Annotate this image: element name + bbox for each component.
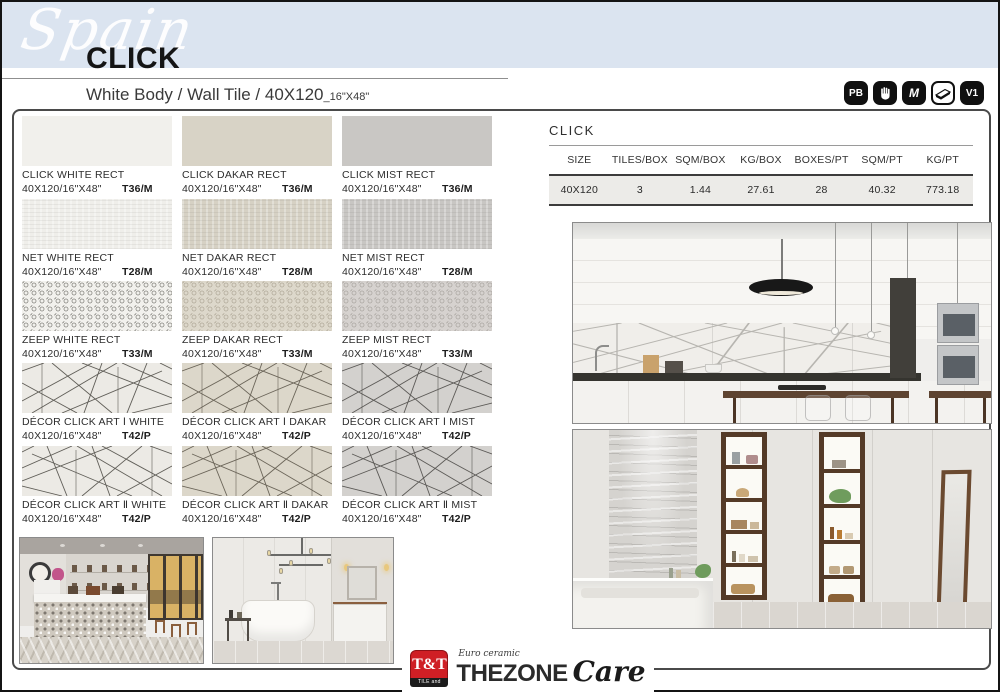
tile-swatch-net-mist bbox=[342, 199, 492, 249]
product-row-zeep: ZEEP WHITE RECT 40X120/16"X48"T33/M ZEEP… bbox=[22, 281, 492, 361]
product-card: CLICK DAKAR RECT 40X120/16"X48"T36/M bbox=[182, 116, 332, 196]
bottle bbox=[676, 570, 681, 578]
shelf-tower bbox=[819, 432, 865, 616]
col-header: SQM/BOX bbox=[670, 154, 731, 166]
cell-sqm-box: 1.44 bbox=[670, 184, 731, 196]
v1-badge: V1 bbox=[960, 81, 984, 105]
chandelier bbox=[269, 554, 331, 556]
spec-table: CLICK SIZE TILES/BOX SQM/BOX KG/BOX BOXE… bbox=[549, 123, 973, 206]
counter-top bbox=[34, 594, 146, 602]
product-size: 40X120/16"X48" bbox=[22, 183, 122, 197]
product-name: DÉCOR CLICK ART Ⅰ MIST bbox=[342, 416, 492, 430]
floor bbox=[213, 641, 393, 663]
product-size: 40X120/16"X48" bbox=[22, 430, 122, 444]
product-card: DÉCOR CLICK ART Ⅰ MIST 40X120/16"X48"T42… bbox=[342, 363, 492, 443]
jars bbox=[665, 361, 683, 373]
col-header: TILES/BOX bbox=[610, 154, 671, 166]
oven bbox=[937, 345, 979, 385]
product-code: T28/M bbox=[282, 266, 313, 280]
product-card: NET WHITE RECT 40X120/16"X48"T28/M bbox=[22, 199, 172, 279]
product-code: T36/M bbox=[442, 183, 473, 197]
product-row-click: CLICK WHITE RECT 40X120/16"X48"T36/M CLI… bbox=[22, 116, 492, 196]
product-code: T33/M bbox=[282, 348, 313, 362]
product-code: T33/M bbox=[442, 348, 473, 362]
product-card: DÉCOR CLICK ART Ⅰ DAKAR 40X120/16"X48"T4… bbox=[182, 363, 332, 443]
header-divider bbox=[2, 78, 508, 79]
product-card: CLICK MIST RECT 40X120/16"X48"T36/M bbox=[342, 116, 492, 196]
shelf-items bbox=[72, 583, 150, 590]
product-card: DÉCOR CLICK ART Ⅰ WHITE 40X120/16"X48"T4… bbox=[22, 363, 172, 443]
product-card: DÉCOR CLICK ART Ⅱ MIST 40X120/16"X48"T42… bbox=[342, 446, 492, 526]
product-size: 40X120/16"X48" bbox=[182, 266, 282, 280]
kitchen-room-photo bbox=[572, 222, 992, 424]
chair bbox=[845, 395, 871, 421]
product-name: ZEEP WHITE RECT bbox=[22, 334, 172, 348]
product-name: CLICK MIST RECT bbox=[342, 169, 492, 183]
pb-badge: PB bbox=[844, 81, 868, 105]
certification-badges: PB M V1 bbox=[844, 81, 984, 105]
product-card: NET MIST RECT 40X120/16"X48"T28/M bbox=[342, 199, 492, 279]
product-name: CLICK WHITE RECT bbox=[22, 169, 172, 183]
product-code: T28/M bbox=[442, 266, 473, 280]
tile-swatch-zeep-mist bbox=[342, 281, 492, 331]
tile-swatch-decor1-mist bbox=[342, 363, 492, 413]
product-name: DÉCOR CLICK ART Ⅱ WHITE bbox=[22, 499, 172, 513]
cutting-board bbox=[643, 355, 659, 373]
product-size: 40X120/16"X48" bbox=[342, 430, 442, 444]
product-card: DÉCOR CLICK ART Ⅱ DAKAR 40X120/16"X48"T4… bbox=[182, 446, 332, 526]
shelf bbox=[70, 572, 152, 573]
vanity bbox=[333, 604, 387, 644]
shelf-items bbox=[72, 565, 150, 572]
col-header: KG/BOX bbox=[731, 154, 792, 166]
product-card: ZEEP DAKAR RECT 40X120/16"X48"T33/M bbox=[182, 281, 332, 361]
product-card: DÉCOR CLICK ART Ⅱ WHITE 40X120/16"X48"T4… bbox=[22, 446, 172, 526]
oven bbox=[937, 303, 979, 343]
tt-band-text: TILE and TRADE bbox=[410, 678, 448, 687]
tile-swatch-decor2-dakar bbox=[182, 446, 332, 496]
tile-swatch-decor2-white bbox=[22, 446, 172, 496]
product-code: T42/P bbox=[442, 513, 471, 527]
vanity-mirror bbox=[347, 566, 377, 600]
product-card: CLICK WHITE RECT 40X120/16"X48"T36/M bbox=[22, 116, 172, 196]
product-size: 40X120/16"X48" bbox=[182, 183, 282, 197]
freestanding-tub bbox=[241, 600, 315, 642]
product-size: 40X120/16"X48" bbox=[182, 513, 282, 527]
tall-cabinet bbox=[890, 278, 916, 378]
chevron-floor bbox=[20, 637, 203, 663]
product-size: 40X120/16"X48" bbox=[342, 348, 442, 362]
shop-counter-photo bbox=[19, 537, 204, 664]
tile-swatch-decor2-mist bbox=[342, 446, 492, 496]
faucet bbox=[595, 345, 609, 371]
col-header: KG/PT bbox=[912, 154, 973, 166]
cell-size: 40X120 bbox=[549, 184, 610, 196]
bottle bbox=[669, 568, 673, 578]
content-frame: CLICK WHITE RECT 40X120/16"X48"T36/M CLI… bbox=[12, 109, 991, 670]
product-size: 40X120/16"X48" bbox=[342, 183, 442, 197]
product-name: ZEEP MIST RECT bbox=[342, 334, 492, 348]
product-code: T42/P bbox=[282, 430, 311, 444]
leaning-mirror bbox=[936, 470, 971, 618]
pot bbox=[705, 364, 722, 373]
thezone-wordmark: THEZONE bbox=[456, 660, 567, 688]
care-wordmark: Care bbox=[573, 659, 646, 684]
hand-icon bbox=[873, 81, 897, 105]
product-row-decor-1: DÉCOR CLICK ART Ⅰ WHITE 40X120/16"X48"T4… bbox=[22, 363, 492, 443]
tile-slab-icon bbox=[931, 81, 955, 105]
tile-swatch-zeep-dakar bbox=[182, 281, 332, 331]
product-name: ZEEP DAKAR RECT bbox=[182, 334, 332, 348]
product-code: T33/M bbox=[122, 348, 153, 362]
spec-table-data-row: 40X120 3 1.44 27.61 28 40.32 773.18 bbox=[549, 176, 973, 204]
cell-kg-pt: 773.18 bbox=[912, 184, 973, 196]
cell-kg-box: 27.61 bbox=[731, 184, 792, 196]
window bbox=[148, 554, 203, 620]
brand-logo: T&T TILE and TRADE Euro ceramic THEZONE … bbox=[402, 640, 654, 696]
tile-swatch-net-white bbox=[22, 199, 172, 249]
cell-sqm-pt: 40.32 bbox=[852, 184, 913, 196]
chair bbox=[171, 624, 181, 637]
col-header: SIZE bbox=[549, 154, 610, 166]
bottle bbox=[237, 612, 242, 618]
product-size: 40X120/16"X48" bbox=[342, 266, 442, 280]
wall-sconce bbox=[384, 564, 389, 571]
product-name: NET DAKAR RECT bbox=[182, 252, 332, 266]
product-code: T42/P bbox=[122, 513, 151, 527]
product-code: T36/M bbox=[122, 183, 153, 197]
m-badge: M bbox=[902, 81, 926, 105]
countertop bbox=[573, 373, 921, 381]
spec-table-title: CLICK bbox=[549, 123, 973, 138]
tub-faucet bbox=[277, 582, 279, 602]
cell-boxes-pt: 28 bbox=[791, 184, 852, 196]
product-name: CLICK DAKAR RECT bbox=[182, 169, 332, 183]
shelf-tower bbox=[721, 432, 767, 600]
product-code: T42/P bbox=[122, 430, 151, 444]
product-row-net: NET WHITE RECT 40X120/16"X48"T28/M NET D… bbox=[22, 199, 492, 279]
bathroom-room-photo bbox=[572, 429, 992, 629]
subtitle-inches: _16"X48" bbox=[323, 91, 369, 103]
tt-logo: T&T TILE and TRADE bbox=[410, 650, 448, 687]
col-header: BOXES/PT bbox=[791, 154, 852, 166]
product-code: T36/M bbox=[282, 183, 313, 197]
floor bbox=[713, 602, 991, 628]
tile-swatch-click-mist bbox=[342, 116, 492, 166]
product-card: NET DAKAR RECT 40X120/16"X48"T28/M bbox=[182, 199, 332, 279]
tile-swatch-decor1-dakar bbox=[182, 363, 332, 413]
product-size: 40X120/16"X48" bbox=[342, 513, 442, 527]
page-subtitle: White Body / Wall Tile / 40X120_16"X48" bbox=[86, 85, 369, 105]
side-table bbox=[929, 391, 992, 398]
product-name: DÉCOR CLICK ART Ⅰ DAKAR bbox=[182, 416, 332, 430]
shelf bbox=[70, 590, 152, 591]
bottle bbox=[229, 610, 233, 618]
product-code: T42/P bbox=[442, 430, 471, 444]
product-card: ZEEP WHITE RECT 40X120/16"X48"T33/M bbox=[22, 281, 172, 361]
tile-swatch-net-dakar bbox=[182, 199, 332, 249]
product-size: 40X120/16"X48" bbox=[22, 348, 122, 362]
tile-swatch-click-dakar bbox=[182, 116, 332, 166]
product-size: 40X120/16"X48" bbox=[22, 266, 122, 280]
tt-mark: T&T bbox=[410, 650, 448, 678]
tile-swatch-zeep-white bbox=[22, 281, 172, 331]
product-name: DÉCOR CLICK ART Ⅰ WHITE bbox=[22, 416, 172, 430]
decor-backsplash bbox=[573, 323, 903, 375]
chair bbox=[805, 395, 831, 421]
pendant-light bbox=[831, 327, 839, 335]
pendant-light bbox=[867, 331, 875, 339]
page-title: CLICK bbox=[86, 42, 180, 76]
product-row-decor-2: DÉCOR CLICK ART Ⅱ WHITE 40X120/16"X48"T4… bbox=[22, 446, 492, 526]
cell-tiles-box: 3 bbox=[610, 184, 671, 196]
product-size: 40X120/16"X48" bbox=[182, 430, 282, 444]
product-size: 40X120/16"X48" bbox=[22, 513, 122, 527]
spec-table-header-row: SIZE TILES/BOX SQM/BOX KG/BOX BOXES/PT S… bbox=[549, 146, 973, 174]
chair bbox=[155, 620, 165, 633]
product-name: NET WHITE RECT bbox=[22, 252, 172, 266]
product-size: 40X120/16"X48" bbox=[182, 348, 282, 362]
product-name: DÉCOR CLICK ART Ⅱ MIST bbox=[342, 499, 492, 513]
tile-swatch-decor1-white bbox=[22, 363, 172, 413]
col-header: SQM/PT bbox=[852, 154, 913, 166]
product-name: NET MIST RECT bbox=[342, 252, 492, 266]
table-line bbox=[549, 204, 973, 206]
product-code: T42/P bbox=[282, 513, 311, 527]
bathtub-room-photo bbox=[212, 537, 394, 664]
product-code: T28/M bbox=[122, 266, 153, 280]
bathtub bbox=[573, 578, 713, 629]
tray bbox=[778, 385, 826, 390]
product-name: DÉCOR CLICK ART Ⅱ DAKAR bbox=[182, 499, 332, 513]
product-card: ZEEP MIST RECT 40X120/16"X48"T33/M bbox=[342, 281, 492, 361]
tile-swatch-click-white bbox=[22, 116, 172, 166]
chair bbox=[187, 622, 197, 635]
